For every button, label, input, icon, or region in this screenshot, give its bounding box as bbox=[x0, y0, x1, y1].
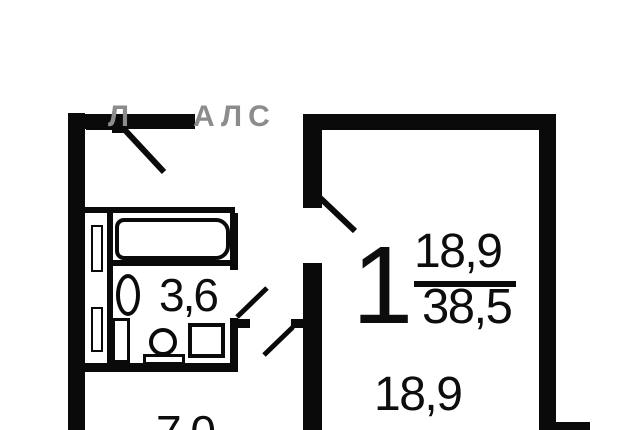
door-swings bbox=[0, 0, 640, 430]
living-area-label: 18,9 bbox=[414, 228, 501, 276]
bathroom-door-leaf bbox=[237, 288, 267, 317]
hall-door-leaf bbox=[264, 327, 293, 355]
entry-door-leaf bbox=[124, 129, 164, 172]
watermark-right: АЛС bbox=[193, 102, 276, 132]
room-count-label: 1 bbox=[352, 231, 413, 341]
room1-door-leaf bbox=[316, 194, 355, 231]
bathroom-area-label: 3,6 bbox=[159, 272, 217, 318]
total-area-label: 38,5 bbox=[422, 283, 511, 332]
kitchen-area-label: 7,0 bbox=[156, 409, 214, 430]
floor-plan: 3,6 1 18,9 38,5 18,9 7,0 Л АЛС bbox=[0, 0, 640, 430]
main-room-area-label: 18,9 bbox=[374, 371, 461, 419]
watermark-left: Л bbox=[108, 102, 135, 132]
